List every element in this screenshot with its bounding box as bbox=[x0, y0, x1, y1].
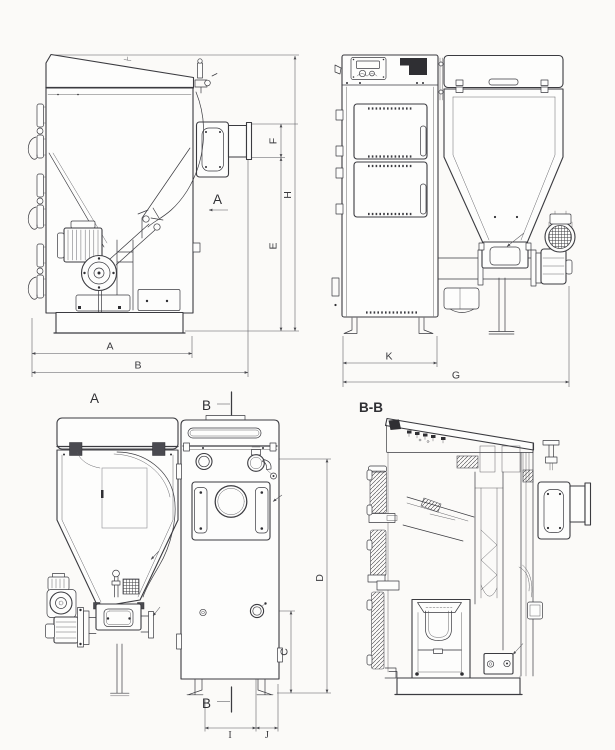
side-view: A F E H A B bbox=[28, 55, 299, 378]
dim-h-label: H bbox=[282, 191, 294, 199]
section-bb-title: B-B bbox=[359, 400, 383, 415]
door-hinges bbox=[28, 104, 46, 299]
section-line-b-top: B bbox=[202, 392, 232, 416]
lid-clamp bbox=[70, 443, 83, 456]
front-hinge-tabs bbox=[332, 110, 343, 306]
burner-assembly bbox=[412, 600, 470, 679]
dimension-j: J bbox=[256, 728, 278, 741]
boiler-hopper-body bbox=[46, 87, 193, 313]
feed-trough-rear bbox=[94, 603, 145, 631]
control-panel bbox=[351, 58, 386, 80]
front-legs bbox=[344, 318, 433, 334]
section-b-bottom-label: B bbox=[202, 696, 211, 711]
dimension-a: A bbox=[32, 341, 192, 354]
section-arrow-a: A bbox=[209, 192, 228, 210]
side-tab bbox=[193, 243, 200, 252]
connector-strip bbox=[439, 58, 443, 100]
front-latch bbox=[335, 65, 341, 74]
lid-handle bbox=[124, 57, 131, 61]
auger-motor bbox=[531, 211, 575, 286]
dimension-b: B bbox=[32, 360, 248, 373]
outlet-stub bbox=[141, 607, 160, 638]
section-bb-view: B-B bbox=[359, 400, 591, 695]
dim-i-label: I bbox=[228, 730, 231, 741]
dim-g-label: G bbox=[452, 370, 460, 382]
lid-latch bbox=[195, 59, 217, 93]
dim-k-label: K bbox=[385, 351, 392, 363]
ash-box bbox=[444, 288, 479, 313]
dim-a-label: A bbox=[106, 341, 113, 353]
firebox-baffles bbox=[403, 497, 474, 541]
flue-outlet bbox=[197, 122, 252, 177]
sloped-top-panel bbox=[386, 419, 534, 451]
dim-f-label: F bbox=[268, 138, 280, 144]
vent-valve bbox=[543, 441, 559, 471]
section-doors bbox=[367, 452, 399, 678]
boiler-rear-body bbox=[181, 420, 279, 679]
dimension-g: G bbox=[343, 370, 569, 383]
technical-drawing: A F E H A B bbox=[0, 0, 615, 750]
dimension-d: D bbox=[314, 459, 327, 693]
front-view: K G bbox=[332, 55, 575, 387]
dim-e-label: E bbox=[268, 242, 280, 249]
section-b-top-label: B bbox=[202, 398, 211, 413]
heat-exchanger-channel bbox=[475, 472, 503, 650]
upper-door bbox=[354, 104, 427, 159]
side-tab bbox=[177, 464, 182, 479]
dim-d-label: D bbox=[314, 574, 326, 582]
dimension-i: I bbox=[205, 728, 256, 741]
fan-box bbox=[484, 644, 523, 675]
dimension-f: F bbox=[268, 124, 282, 158]
base-plinth bbox=[56, 313, 183, 334]
lid-clamp bbox=[153, 443, 166, 456]
insulation-block bbox=[457, 456, 478, 468]
section-flue-outlet bbox=[538, 482, 591, 539]
door-handle-slot bbox=[421, 126, 427, 156]
section-arrow-a-label: A bbox=[213, 192, 222, 207]
dimension-k: K bbox=[343, 351, 437, 364]
trough-leg bbox=[489, 278, 514, 334]
base-bracket bbox=[138, 290, 180, 311]
lid-handle-slot bbox=[489, 79, 518, 85]
upper-port bbox=[196, 454, 212, 470]
support-leg bbox=[111, 644, 130, 696]
drain-port bbox=[200, 609, 206, 615]
side-tab bbox=[177, 634, 182, 649]
dimension-h: H bbox=[282, 56, 295, 331]
hopper-rear-view: A bbox=[46, 391, 179, 696]
dim-b-label: B bbox=[134, 360, 141, 372]
flue-plate bbox=[192, 482, 282, 540]
rear-view: B B bbox=[177, 392, 332, 741]
dim-j-label: J bbox=[265, 730, 269, 741]
dim-c-label: C bbox=[279, 648, 291, 656]
rear-legs bbox=[187, 679, 273, 695]
dimension-c: C bbox=[279, 611, 292, 693]
dimension-e: E bbox=[268, 158, 282, 332]
view-a-title: A bbox=[90, 391, 99, 406]
hopper-lid bbox=[46, 55, 194, 89]
hopper-front bbox=[444, 56, 563, 244]
lower-door bbox=[354, 162, 427, 217]
door-handle-slot bbox=[421, 184, 427, 214]
section-line-b-bottom: B bbox=[202, 687, 232, 712]
